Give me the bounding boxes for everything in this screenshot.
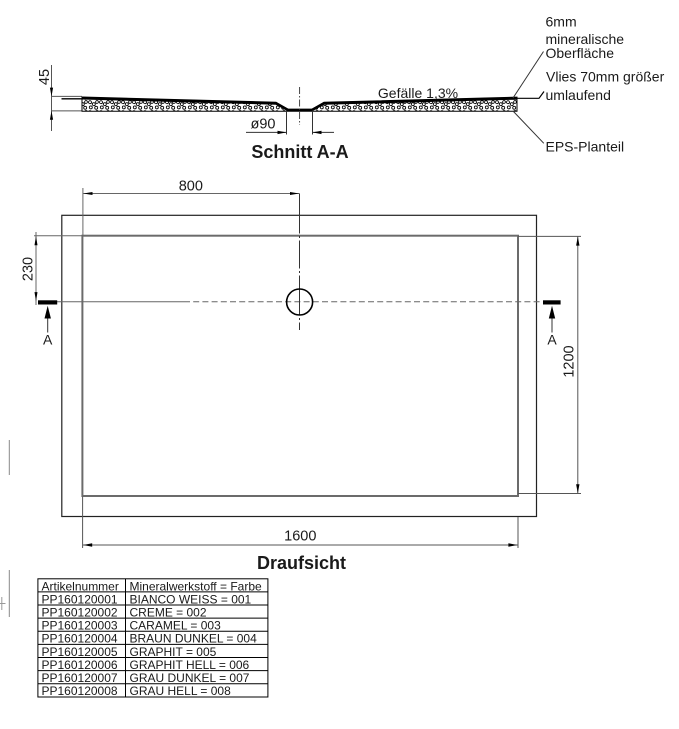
svg-text:PP160120007: PP160120007 (42, 671, 118, 685)
svg-text:BRAUN DUNKEL = 004: BRAUN DUNKEL = 004 (130, 632, 258, 646)
svg-text:ø90: ø90 (251, 117, 276, 133)
svg-text:45: 45 (37, 69, 53, 85)
svg-text:CREME = 002: CREME = 002 (130, 606, 207, 620)
svg-text:Oberfläche: Oberfläche (546, 45, 615, 61)
svg-text:PP160120001: PP160120001 (42, 592, 118, 606)
svg-text:Gefälle 1,3%: Gefälle 1,3% (378, 85, 458, 101)
svg-text:PP160120004: PP160120004 (42, 632, 118, 646)
svg-text:Artikelnummer: Artikelnummer (42, 579, 119, 593)
svg-text:GRAPHIT = 005: GRAPHIT = 005 (130, 645, 217, 659)
svg-text:GRAU HELL = 008: GRAU HELL = 008 (130, 684, 232, 698)
svg-text:A: A (43, 332, 53, 348)
svg-text:Schnitt A-A: Schnitt A-A (251, 142, 348, 162)
svg-text:6mm: 6mm (546, 14, 577, 30)
svg-text:GRAU DUNKEL = 007: GRAU DUNKEL = 007 (130, 671, 250, 685)
svg-text:GRAPHIT HELL = 006: GRAPHIT HELL = 006 (130, 658, 250, 672)
svg-text:1600: 1600 (284, 529, 316, 545)
svg-text:1200: 1200 (561, 345, 577, 377)
svg-text:Mineralwerkstoff = Farbe: Mineralwerkstoff = Farbe (130, 579, 262, 593)
svg-text:CARAMEL = 003: CARAMEL = 003 (130, 619, 222, 633)
svg-text:PP160120008: PP160120008 (42, 684, 118, 698)
svg-text:BIANCO WEISS = 001: BIANCO WEISS = 001 (130, 592, 252, 606)
svg-text:A: A (547, 332, 557, 348)
svg-text:PP160120005: PP160120005 (42, 645, 118, 659)
svg-text:Draufsicht: Draufsicht (257, 553, 346, 573)
svg-text:230: 230 (21, 257, 37, 281)
svg-text:Vlies 70mm größer: Vlies 70mm größer (546, 69, 665, 85)
svg-text:800: 800 (179, 179, 203, 195)
svg-text:PP160120006: PP160120006 (42, 658, 118, 672)
svg-text:PP160120003: PP160120003 (42, 619, 118, 633)
svg-text:EPS-Planteil: EPS-Planteil (546, 139, 625, 155)
svg-text:umlaufend: umlaufend (546, 87, 611, 103)
svg-text:PP160120002: PP160120002 (42, 606, 118, 620)
